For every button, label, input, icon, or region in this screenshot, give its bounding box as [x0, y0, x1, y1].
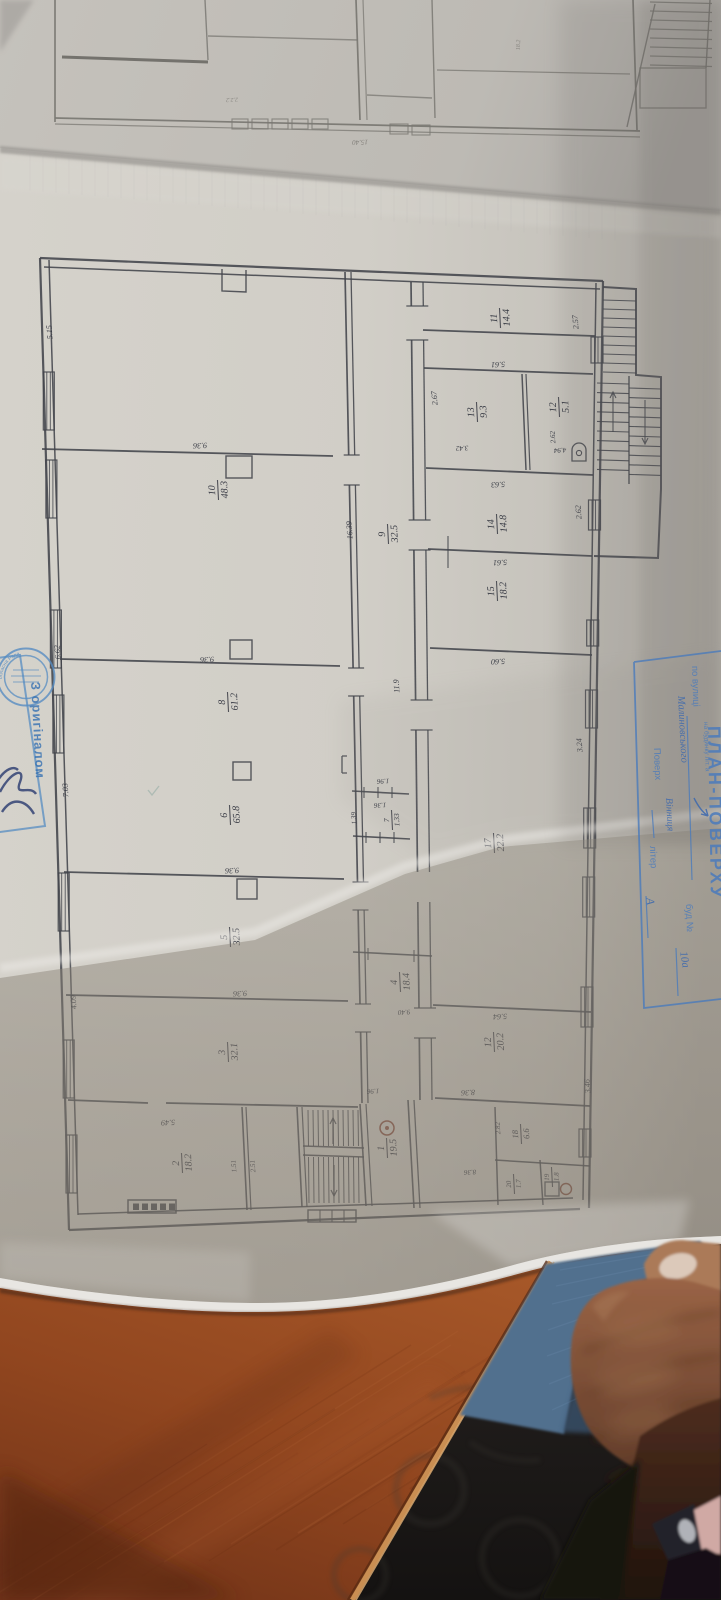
svg-text:9.36: 9.36	[225, 866, 239, 875]
svg-text:15.40: 15.40	[352, 138, 369, 147]
svg-text:65.8: 65.8	[231, 806, 243, 824]
svg-text:14.4: 14.4	[501, 309, 513, 327]
svg-text:1.39: 1.39	[350, 811, 359, 824]
svg-text:11: 11	[489, 313, 500, 323]
svg-text:5.60: 5.60	[491, 657, 505, 666]
svg-text:5.15: 5.15	[45, 325, 55, 340]
svg-text:Поверх: Поверх	[651, 748, 663, 781]
svg-text:5.61: 5.61	[493, 558, 507, 567]
svg-text:5.61: 5.61	[491, 360, 505, 369]
svg-text:2.2.2: 2.2.2	[226, 96, 238, 102]
svg-text:32.5: 32.5	[389, 525, 401, 544]
svg-text:9.3: 9.3	[478, 405, 490, 418]
svg-text:9.36: 9.36	[193, 441, 207, 450]
svg-text:9: 9	[377, 532, 388, 538]
svg-text:9.36: 9.36	[200, 655, 214, 664]
svg-text:10: 10	[207, 485, 219, 496]
svg-text:2.67: 2.67	[429, 390, 439, 406]
svg-text:Вінниця: Вінниця	[663, 798, 676, 832]
svg-text:6.62: 6.62	[53, 645, 63, 660]
svg-text:6: 6	[219, 813, 230, 819]
svg-text:літер: літер	[647, 846, 659, 869]
svg-text:3.42: 3.42	[455, 444, 469, 452]
svg-text:14.8: 14.8	[498, 515, 510, 533]
svg-text:11.9: 11.9	[392, 679, 402, 693]
svg-text:7.03: 7.03	[61, 783, 71, 798]
svg-text:18.2: 18.2	[516, 40, 522, 51]
svg-text:14: 14	[486, 519, 498, 530]
svg-text:по вулиці: по вулиці	[689, 666, 701, 707]
svg-text:буд №: буд №	[683, 904, 695, 932]
svg-text:5.63: 5.63	[491, 480, 505, 489]
svg-text:48.3: 48.3	[219, 481, 231, 499]
svg-text:12: 12	[548, 402, 560, 413]
svg-text:8: 8	[217, 700, 228, 706]
svg-text:16.39: 16.39	[344, 521, 354, 540]
svg-text:13: 13	[466, 407, 478, 418]
svg-text:18.2: 18.2	[498, 582, 510, 600]
svg-text:61.2: 61.2	[229, 693, 241, 711]
svg-text:2.62: 2.62	[549, 430, 558, 443]
svg-text:15: 15	[486, 586, 498, 597]
